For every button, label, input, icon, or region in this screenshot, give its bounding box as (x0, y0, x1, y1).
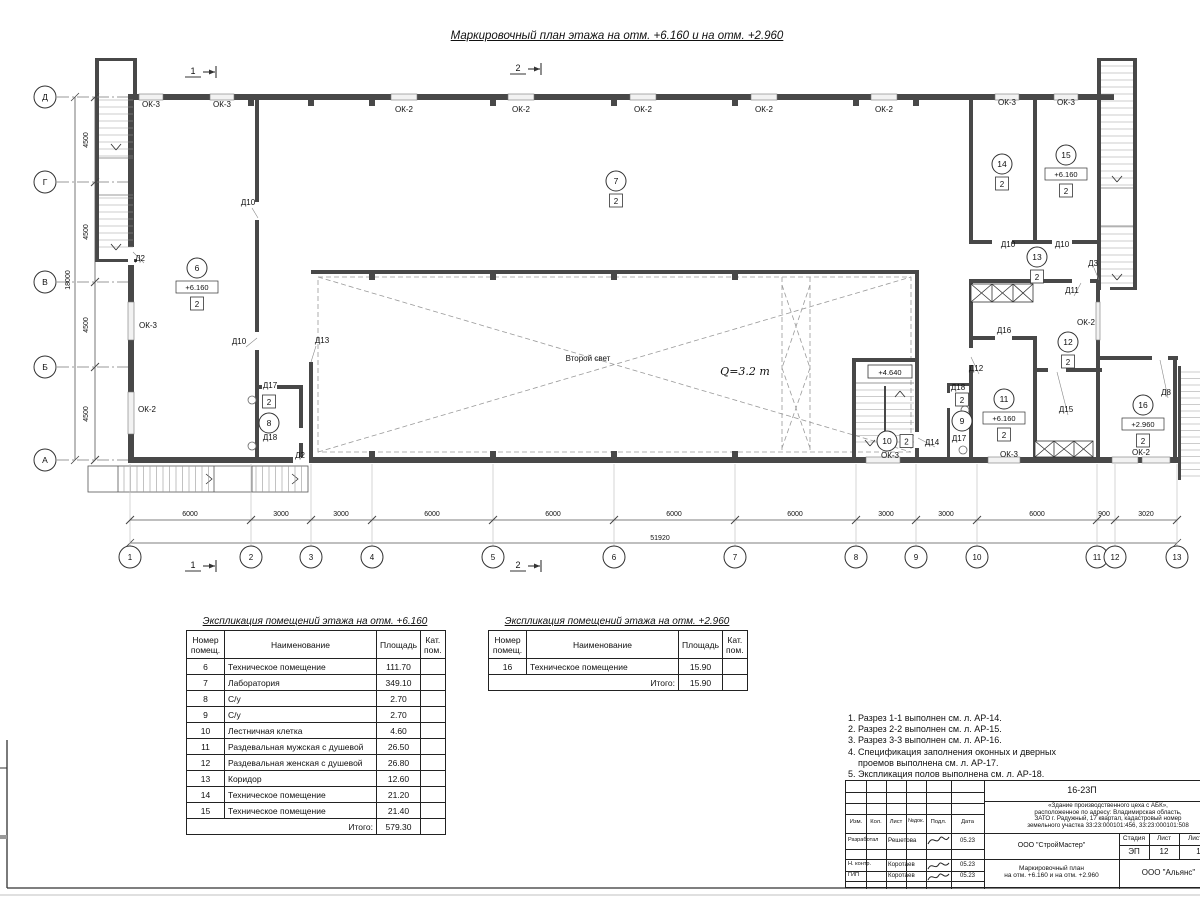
table-cell: 6 (187, 659, 225, 675)
signature-gip (926, 870, 951, 883)
table-cell (421, 819, 446, 835)
section-arrowhead (209, 70, 215, 75)
table-row: 8С/у2.70 (187, 691, 446, 707)
dim-label: 6000 (182, 511, 198, 518)
table-cell: 12 (187, 755, 225, 771)
col-podl: Подл. (926, 819, 951, 825)
opening-label: Д10 (232, 337, 247, 346)
notes-list: 1. Разрез 1-1 выполнен см. л. АР-14.2. Р… (848, 713, 1056, 780)
table-cell: Лестничная клетка (225, 723, 377, 739)
opening-label: Д10 (1055, 240, 1070, 249)
table-cell: Коридор (225, 771, 377, 787)
axis-row-label: Д (42, 92, 48, 102)
opening-label: ОК-3 (1057, 98, 1076, 107)
table-cell: Лаборатория (225, 675, 377, 691)
room-number: 11 (1000, 394, 1009, 404)
annotation-text: +4.640 (878, 368, 901, 377)
section-mark-number: 1 (190, 66, 195, 76)
opening-label: Д15 (1059, 405, 1074, 414)
room-table-2-title: Экспликация помещений этажа на отм. +2.9… (488, 616, 746, 627)
room-number: 7 (614, 176, 619, 186)
room-level: +6.160 (185, 283, 208, 292)
opening-label: Д18 (263, 433, 278, 442)
date-gip: 05.23 (951, 873, 984, 879)
table-total-label: Итого: (489, 675, 679, 691)
title-block: Изм. Кол. Лист №док. Подл. Дата Разработ… (845, 780, 1200, 888)
room-level: +6.160 (992, 414, 1015, 423)
table-cell: 12.60 (377, 771, 421, 787)
opening-label: ОК-3 (142, 100, 161, 109)
table-cell: 4.60 (377, 723, 421, 739)
opening-label: ОК-2 (395, 105, 414, 114)
dim-label: 3000 (333, 511, 349, 518)
table-cell: С/у (225, 707, 377, 723)
table-total-value: 579.30 (377, 819, 421, 835)
axis-col-label: 10 (973, 553, 982, 562)
room-number: 12 (1063, 337, 1073, 347)
room-category: 2 (1141, 437, 1146, 446)
table-cell (421, 787, 446, 803)
dim-total-label: 18000 (65, 270, 72, 290)
note-line: 1. Разрез 1-1 выполнен см. л. АР-14. (848, 713, 1056, 724)
table-cell (421, 675, 446, 691)
opening-label: Д16 (997, 326, 1012, 335)
col-izm: Изм. (846, 819, 866, 825)
sheets-label: Листов (1179, 836, 1200, 843)
col-list: Лист (886, 819, 906, 825)
table-cell: 15 (187, 803, 225, 819)
table-row: 6Техническое помещение111.70 (187, 659, 446, 675)
opening-label: Д8 (1161, 388, 1171, 397)
table-row: 12Раздевальная женская с душевой26.80 (187, 755, 446, 771)
table-total-label: Итого: (187, 819, 377, 835)
table-cell (421, 691, 446, 707)
opening-label: Д18 (951, 383, 966, 392)
opening-label: Д17 (952, 434, 967, 443)
room-category: 2 (1064, 187, 1069, 196)
table-cell: Техническое помещение (527, 659, 679, 675)
table-cell (421, 723, 446, 739)
dim-label: 6000 (545, 511, 561, 518)
opening-label: ОК-2 (755, 105, 774, 114)
name-gip: Коротаев (888, 873, 926, 880)
room-number: 9 (960, 416, 965, 426)
opening-label: Д14 (925, 438, 940, 447)
table-row: 15Техническое помещение21.40 (187, 803, 446, 819)
role-ncontrol: Н. контр. (848, 862, 886, 868)
room-category: 2 (1035, 273, 1040, 282)
table-cell: 16 (489, 659, 527, 675)
section-mark-number: 1 (190, 560, 195, 570)
dim-label: 4500 (83, 132, 90, 148)
axis-col-label: 12 (1111, 553, 1120, 562)
note-line: 4. Спецификация заполнения оконных и две… (848, 747, 1056, 758)
section-arrowhead (534, 67, 540, 72)
room-table-1-title: Экспликация помещений этажа на отм. +6.1… (186, 616, 444, 627)
room-table-1: Номер помещ.НаименованиеПлощадьКат. пом.… (186, 630, 446, 835)
axis-col-label: 6 (612, 553, 617, 562)
dim-label: 3000 (878, 511, 894, 518)
table-total-row: Итого:15.90 (489, 675, 748, 691)
table-cell: 21.40 (377, 803, 421, 819)
opening-label: Д3 (1088, 259, 1098, 268)
axis-col-label: 8 (854, 553, 859, 562)
table-cell: С/у (225, 691, 377, 707)
axis-row-label: Г (43, 177, 48, 187)
opening-label: ОК-3 (998, 98, 1017, 107)
role-gip: ГИП (848, 873, 886, 879)
table-row: 10Лестничная клетка4.60 (187, 723, 446, 739)
plan-annotations: Второй светQ=3.2 т+4.640 (566, 354, 912, 378)
second-light-dashed (318, 277, 911, 452)
table-cell: 14 (187, 787, 225, 803)
sheet-value: 12 (1149, 848, 1179, 856)
axis-col-label: 9 (914, 553, 919, 562)
opening-label: Д10 (241, 198, 256, 207)
table-cell: Техническое помещение (225, 659, 377, 675)
opening-label: Д2 (135, 254, 145, 263)
table-row: 14Техническое помещение21.20 (187, 787, 446, 803)
opening-label: ОК-2 (1077, 318, 1096, 327)
opening-label: ОК-3 (139, 321, 158, 330)
col-data: Дата (951, 819, 984, 825)
stage-value: ЭП (1119, 848, 1149, 856)
dim-label: 4500 (83, 224, 90, 240)
table-cell: Техническое помещение (225, 787, 377, 803)
room-number: 14 (997, 159, 1007, 169)
opening-label: Д13 (315, 336, 330, 345)
axis-row-label: А (42, 455, 48, 465)
dim-label: 3000 (273, 511, 289, 518)
table-cell: 2.70 (377, 691, 421, 707)
opening-label: Д10 (1001, 240, 1016, 249)
opening-label: ОК-2 (1132, 448, 1151, 457)
name-developer: Решетова (888, 838, 926, 845)
table-row: 16Техническое помещение15.90 (489, 659, 748, 675)
room-level: +2.960 (1131, 420, 1154, 429)
dim-label: 4500 (83, 317, 90, 333)
axis-col-label: 2 (249, 553, 254, 562)
object-description: «Здание производственного цеха с АБК», р… (986, 803, 1200, 829)
note-line: 5. Экспликация полов выполнена см. л. АР… (848, 769, 1056, 780)
table-cell: Раздевальная мужская с душевой (225, 739, 377, 755)
table-cell: 111.70 (377, 659, 421, 675)
opening-label: ОК-2 (875, 105, 894, 114)
dim-label: 4500 (83, 406, 90, 422)
opening-label: Д12 (969, 364, 984, 373)
table-header: Площадь (679, 631, 723, 659)
col-kol: Кол. (866, 819, 886, 825)
room-number: 8 (267, 418, 272, 428)
table-cell: 8 (187, 691, 225, 707)
room-category: 2 (195, 300, 200, 309)
table-cell: 7 (187, 675, 225, 691)
design-company: ООО "СтройМастер" (984, 842, 1119, 849)
axis-col-label: 3 (309, 553, 314, 562)
section-arrowhead (209, 564, 215, 569)
annotation-text: Второй свет (566, 354, 611, 363)
dim-label: 900 (1098, 511, 1110, 518)
name-ncontrol: Коротаев (888, 862, 926, 869)
room-number: 15 (1061, 150, 1071, 160)
window-openings (128, 94, 1170, 463)
section-marks: 1212 (185, 63, 541, 572)
table-header: Кат. пом. (723, 631, 748, 659)
axis-col-label: 13 (1173, 553, 1182, 562)
table-total-row: Итого:579.30 (187, 819, 446, 835)
opening-label: ОК-2 (512, 105, 531, 114)
room-level: +6.160 (1054, 170, 1077, 179)
room-number: 16 (1138, 400, 1148, 410)
table-cell: 349.10 (377, 675, 421, 691)
dim-label: 6000 (787, 511, 803, 518)
table-row: 13Коридор12.60 (187, 771, 446, 787)
room-table-2: Номер помещ.НаименованиеПлощадьКат. пом.… (488, 630, 748, 691)
table-cell: 26.50 (377, 739, 421, 755)
axis-col-label: 11 (1093, 553, 1102, 562)
exterior-stair (88, 466, 308, 492)
opening-label: ОК-3 (213, 100, 232, 109)
doc-number: 16-23П (984, 786, 1180, 795)
table-cell: 26.80 (377, 755, 421, 771)
room-category: 2 (614, 197, 619, 206)
axis-col-label: 7 (733, 553, 738, 562)
dim-label: 6000 (1029, 511, 1045, 518)
dim-label: 3000 (938, 511, 954, 518)
dim-total-label: 51920 (650, 535, 670, 542)
room-number: 10 (882, 436, 892, 446)
room-category: 2 (960, 396, 965, 405)
table-cell (723, 659, 748, 675)
signature-developer (926, 833, 951, 848)
table-row: 11Раздевальная мужская с душевой26.50 (187, 739, 446, 755)
opening-label: ОК-2 (634, 105, 653, 114)
section-arrowhead (534, 564, 540, 569)
table-cell: 9 (187, 707, 225, 723)
axis-grid: ДГВБА12345678910111213 (34, 86, 1188, 568)
table-cell (421, 739, 446, 755)
room-category: 2 (267, 398, 272, 407)
table-cell: 13 (187, 771, 225, 787)
sheets-value: 1 (1179, 848, 1200, 856)
opening-label: Д2 (295, 451, 305, 460)
axis-col-label: 4 (370, 553, 375, 562)
opening-label: ОК-3 (881, 451, 900, 460)
role-developer: Разработал (848, 838, 886, 844)
table-cell: 2.70 (377, 707, 421, 723)
opening-label: Д11 (1065, 286, 1079, 295)
col-ndok: №док. (906, 819, 926, 825)
dim-label: 6000 (666, 511, 682, 518)
table-header: Кат. пом. (421, 631, 446, 659)
drawing-name-line2: на отм. +6.160 и на отм. +2.960 (984, 873, 1119, 880)
table-cell: 21.20 (377, 787, 421, 803)
axis-row-label: В (42, 277, 48, 287)
dim-label: 3020 (1138, 511, 1154, 518)
table-cell: 10 (187, 723, 225, 739)
column-pilasters (248, 100, 919, 457)
axis-row-label: Б (42, 362, 48, 372)
note-line: проемов выполнена см. л. АР-17. (848, 758, 1056, 769)
section-mark-number: 2 (515, 560, 520, 570)
drawing-sheet: Маркировочный план этажа на отм. +6.160 … (0, 0, 1200, 900)
room-category: 2 (1000, 180, 1005, 189)
table-cell (723, 675, 748, 691)
axis-col-label: 1 (128, 553, 133, 562)
dim-label: 6000 (424, 511, 440, 518)
table-cell (421, 755, 446, 771)
opening-label: Д17 (263, 381, 278, 390)
wc-fixtures (248, 396, 969, 454)
table-cell (421, 659, 446, 675)
sheet-label: Лист (1149, 836, 1179, 843)
note-line: 3. Разрез 3-3 выполнен см. л. АР-16. (848, 735, 1056, 746)
table-cell: 11 (187, 739, 225, 755)
client-org: ООО "Альянс" (1119, 869, 1200, 877)
opening-label: ОК-2 (138, 405, 157, 414)
room-category: 2 (904, 438, 909, 447)
axis-col-label: 5 (491, 553, 496, 562)
room-category: 2 (1066, 358, 1071, 367)
table-cell (421, 771, 446, 787)
table-cell: 15.90 (679, 659, 723, 675)
opening-label: ОК-3 (1000, 450, 1019, 459)
table-row: 9С/у2.70 (187, 707, 446, 723)
table-cell: Техническое помещение (225, 803, 377, 819)
date-developer: 05.23 (951, 838, 984, 844)
table-cell (421, 803, 446, 819)
date-ncontrol: 05.23 (951, 862, 984, 868)
room-category: 2 (1002, 431, 1007, 440)
stage-label: Стадия (1119, 836, 1149, 843)
table-cell (421, 707, 446, 723)
drawing-name: Маркировочный план на отм. +6.160 и на о… (984, 866, 1119, 880)
room-number: 13 (1032, 252, 1042, 262)
table-header: Наименование (225, 631, 377, 659)
annotation-text: Q=3.2 т (720, 365, 770, 378)
table-total-value: 15.90 (679, 675, 723, 691)
table-cell: Раздевальная женская с душевой (225, 755, 377, 771)
note-line: 2. Разрез 2-2 выполнен см. л. АР-15. (848, 724, 1056, 735)
table-header: Номер помещ. (187, 631, 225, 659)
table-header: Наименование (527, 631, 679, 659)
section-mark-number: 2 (515, 63, 520, 73)
object-desc-line4: земельного участка 33:23:000101:456, 33:… (986, 823, 1200, 830)
room-number: 6 (195, 263, 200, 273)
table-header: Номер помещ. (489, 631, 527, 659)
table-row: 7Лаборатория349.10 (187, 675, 446, 691)
table-header: Площадь (377, 631, 421, 659)
dimension-lines (71, 93, 1181, 547)
door-openings (128, 247, 309, 463)
